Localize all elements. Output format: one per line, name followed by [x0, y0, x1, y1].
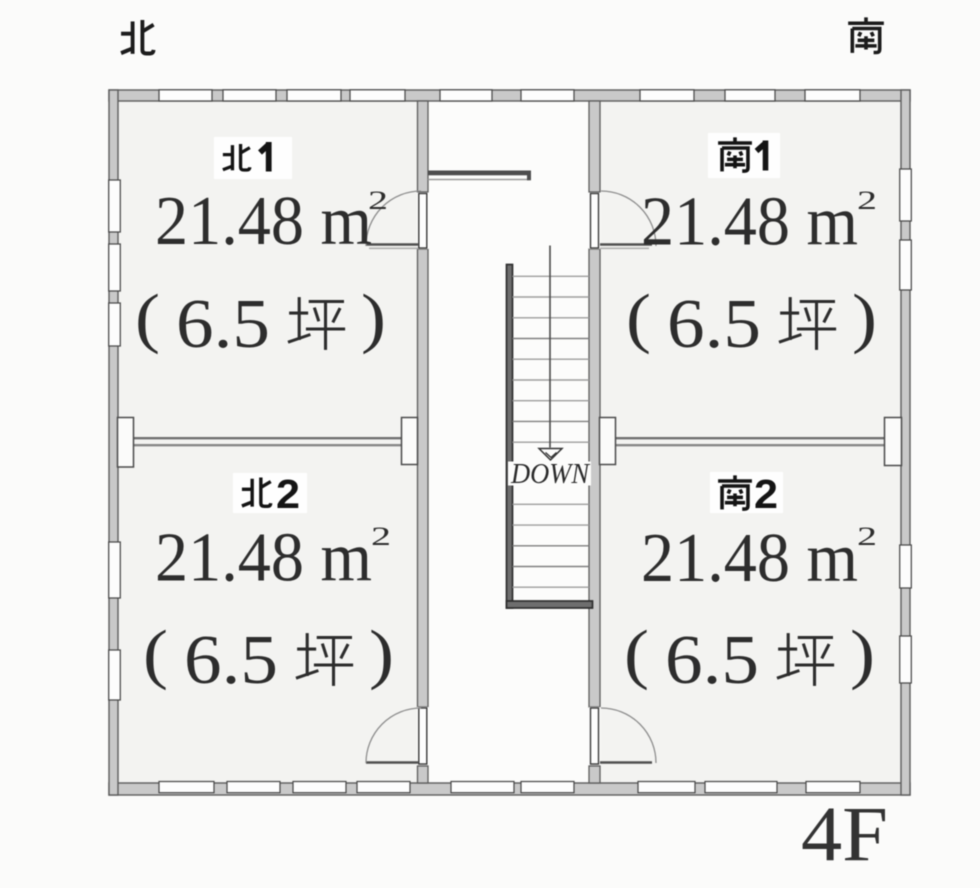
svg-text:6.5: 6.5	[665, 622, 759, 699]
svg-text:2: 2	[857, 186, 877, 215]
svg-text:(: (	[624, 617, 649, 691]
svg-text:): )	[850, 617, 875, 691]
svg-text:): )	[369, 617, 394, 691]
svg-text:(: (	[626, 281, 651, 355]
svg-text:2: 2	[276, 471, 300, 517]
svg-text:21.48 m: 21.48 m	[155, 183, 372, 260]
svg-text:DOWN: DOWN	[510, 459, 590, 490]
svg-text:21.48 m: 21.48 m	[641, 184, 858, 261]
svg-text:4F: 4F	[801, 791, 888, 878]
svg-text:(: (	[135, 281, 160, 355]
svg-text:6.5: 6.5	[184, 622, 278, 699]
svg-text:2: 2	[754, 471, 778, 517]
svg-text:2: 2	[857, 522, 877, 551]
svg-text:6.5: 6.5	[176, 286, 270, 363]
svg-text:21.48 m: 21.48 m	[155, 520, 372, 597]
svg-text:(: (	[143, 617, 168, 691]
svg-text:): )	[852, 281, 877, 355]
svg-text:2: 2	[371, 522, 391, 551]
svg-text:6.5: 6.5	[667, 286, 761, 363]
svg-text:2: 2	[368, 186, 388, 215]
svg-text:): )	[361, 281, 386, 355]
svg-text:21.48 m: 21.48 m	[641, 520, 858, 597]
